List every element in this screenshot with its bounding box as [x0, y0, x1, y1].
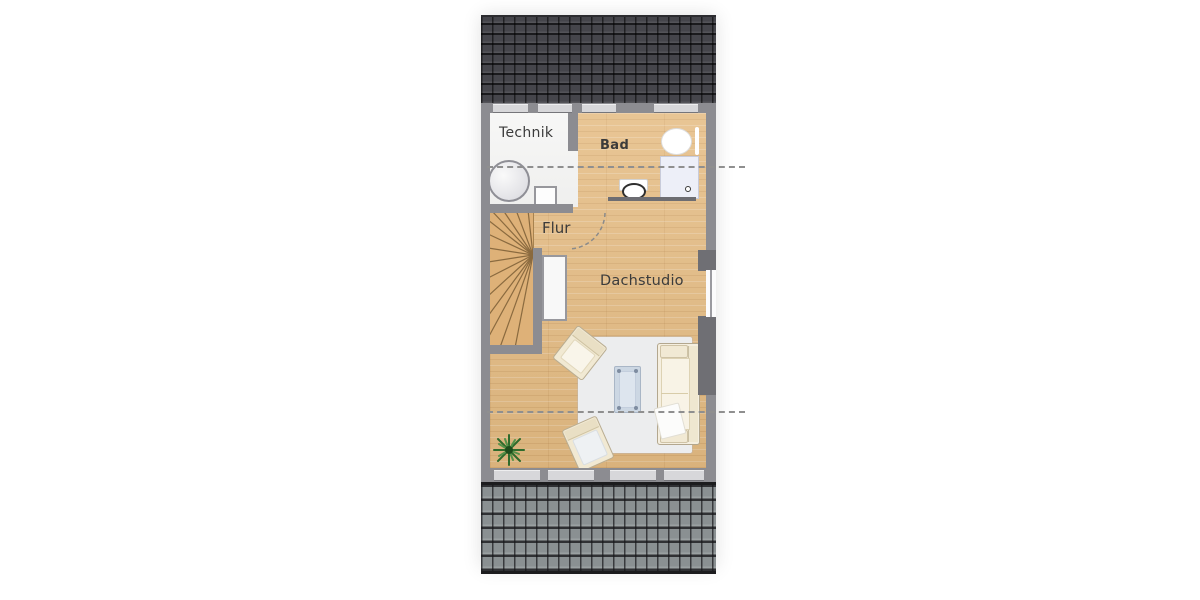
- sofa-armrest: [660, 345, 688, 358]
- wall-niche: [542, 255, 567, 321]
- window-bottom-3: [610, 470, 656, 481]
- roof-tiles-top: [481, 15, 716, 108]
- wall-top: [481, 103, 716, 113]
- shower-icon: [660, 156, 699, 199]
- table-leg-icon: [634, 406, 638, 410]
- window-bottom-1: [494, 470, 540, 481]
- room-label-technik: Technik: [499, 125, 553, 141]
- floor-plan: Technik Bad Flur Dachstudio: [481, 15, 716, 568]
- window-top-3: [582, 104, 616, 113]
- section-line-upper: [487, 166, 745, 168]
- table-leg-icon: [617, 369, 621, 373]
- wall-right-pier-upper: [698, 250, 716, 271]
- window-top-2: [538, 104, 572, 113]
- section-line-lower: [487, 411, 745, 413]
- washbasin-icon: [661, 128, 692, 155]
- window-bottom-2: [548, 470, 594, 481]
- window-bottom-4: [664, 470, 704, 481]
- coffee-table-top: [619, 371, 636, 408]
- window-top-4: [654, 104, 698, 113]
- window-top-1: [493, 104, 528, 113]
- wall-stair-bottom: [488, 345, 542, 354]
- potted-plant-icon: [489, 430, 529, 470]
- sofa-cushion-divider: [661, 393, 688, 394]
- roof-tiles-bottom: [481, 482, 716, 574]
- storey-body: Technik Bad Flur Dachstudio: [481, 103, 716, 482]
- floor-plan-canvas: Technik Bad Flur Dachstudio: [0, 0, 1200, 600]
- wall-bottom: [481, 468, 716, 482]
- wall-right-pier-lower: [698, 316, 716, 395]
- wall-left: [481, 103, 490, 482]
- wall-technik-bottom: [481, 204, 573, 213]
- window-right-glazing: [710, 270, 712, 317]
- sofa-icon: [657, 343, 700, 445]
- room-label-bad: Bad: [600, 138, 629, 153]
- wall-bad-partition: [608, 197, 696, 201]
- room-label-flur: Flur: [542, 219, 570, 237]
- coffee-table-icon: [614, 366, 641, 413]
- wall-stair-right: [533, 248, 542, 353]
- table-leg-icon: [634, 369, 638, 373]
- shower-drain-icon: [685, 186, 691, 192]
- table-leg-icon: [617, 406, 621, 410]
- wall-technik-right: [568, 113, 578, 151]
- room-label-dachstudio: Dachstudio: [600, 273, 684, 289]
- towel-radiator-icon: [695, 127, 699, 155]
